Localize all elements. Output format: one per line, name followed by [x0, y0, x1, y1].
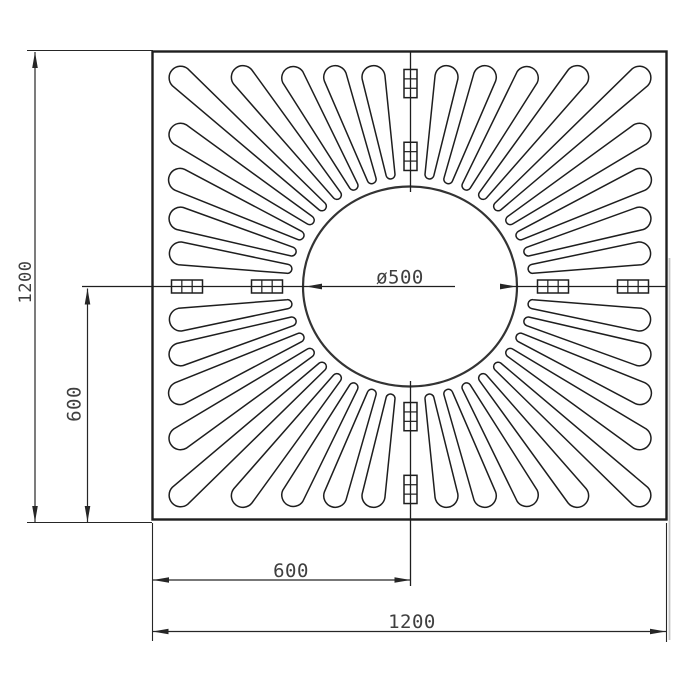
dim-arrow-left-half-top	[85, 289, 91, 305]
dim-arrow-bottom-half-left	[153, 577, 169, 583]
dim-arrow-left-overall-top	[32, 52, 38, 68]
dim-label-bottom-overall: 1200	[388, 611, 436, 633]
dim-arrow-bottom-overall-right	[650, 629, 666, 635]
dim-arrow-left-half-bottom	[85, 506, 91, 522]
drawing-page: ø500 1200 600 600 1200	[0, 0, 690, 690]
dim-arrow-left-overall-bottom	[32, 506, 38, 522]
dim-label-hole-diameter: ø500	[376, 267, 424, 289]
dim-label-bottom-half: 600	[273, 560, 309, 582]
dim-arrow-bottom-overall-left	[153, 629, 169, 635]
dim-label-left-half: 600	[64, 386, 86, 422]
dim-label-left-overall: 1200	[16, 261, 36, 304]
tree-grate-technical-drawing: ø500 1200 600 600 1200	[0, 0, 690, 690]
dim-arrow-bottom-half-right	[395, 577, 411, 583]
